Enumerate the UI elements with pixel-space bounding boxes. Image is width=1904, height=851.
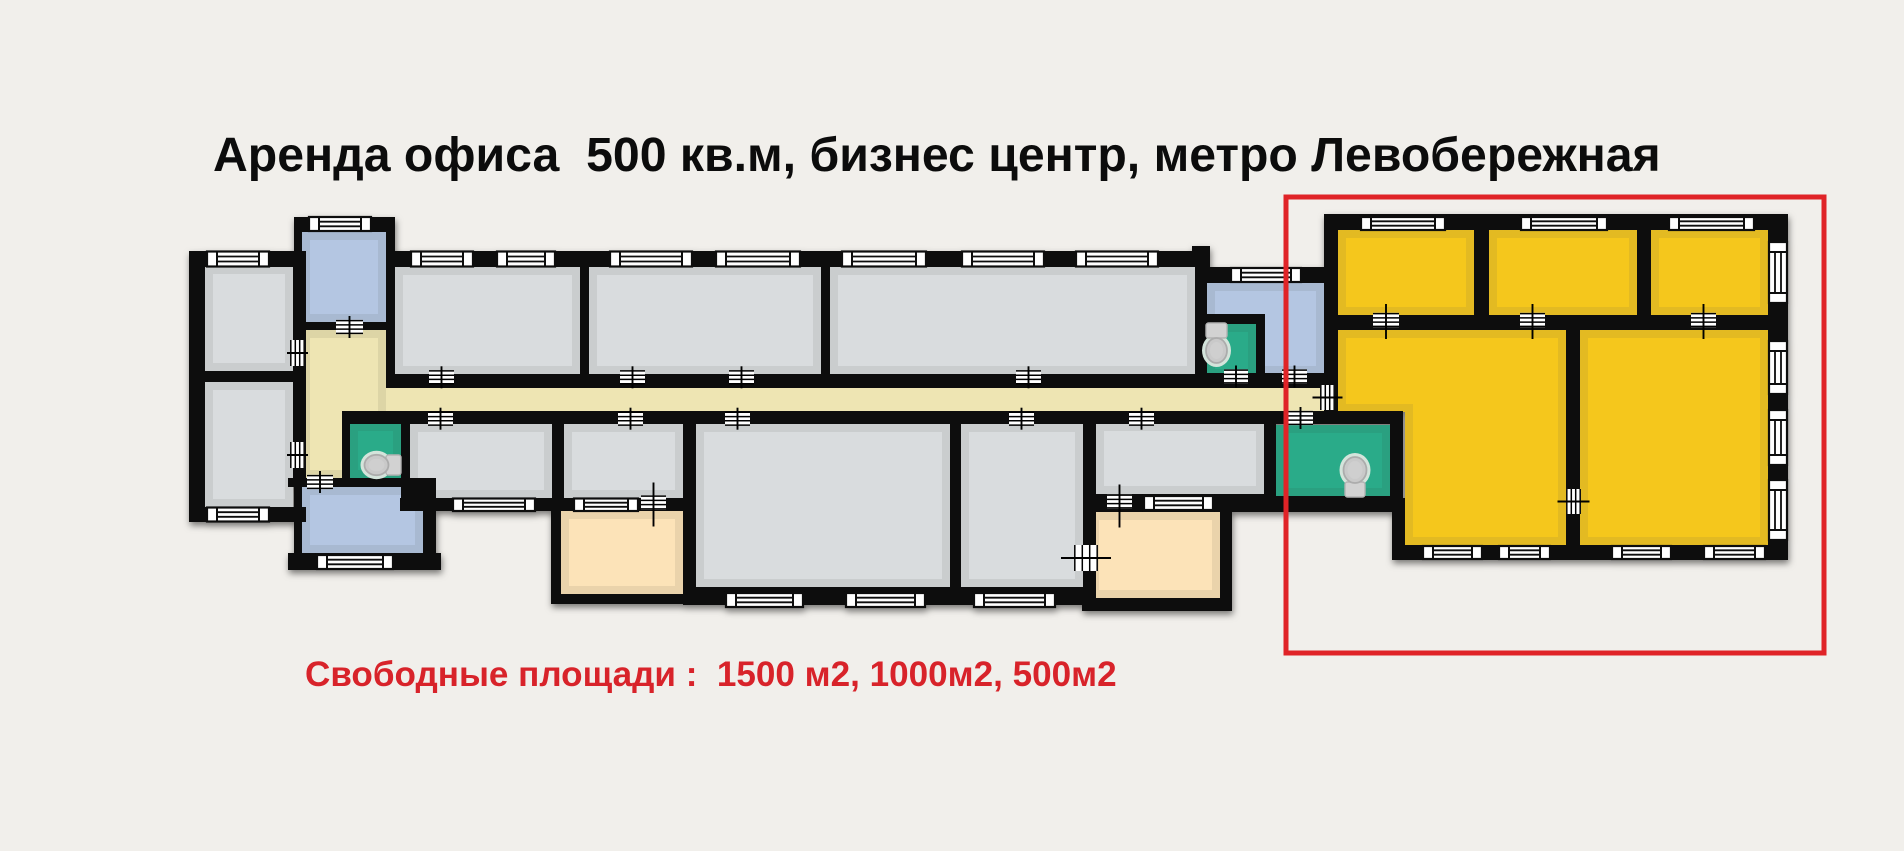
svg-text:Аренда офиса 500 кв.м, бизнес: Аренда офиса 500 кв.м, бизнес центр, мет…	[213, 128, 1661, 182]
svg-text:Свободные площади : 1500 м2,: Свободные площади : 1500 м2, 1000м2, 500…	[305, 655, 1117, 694]
